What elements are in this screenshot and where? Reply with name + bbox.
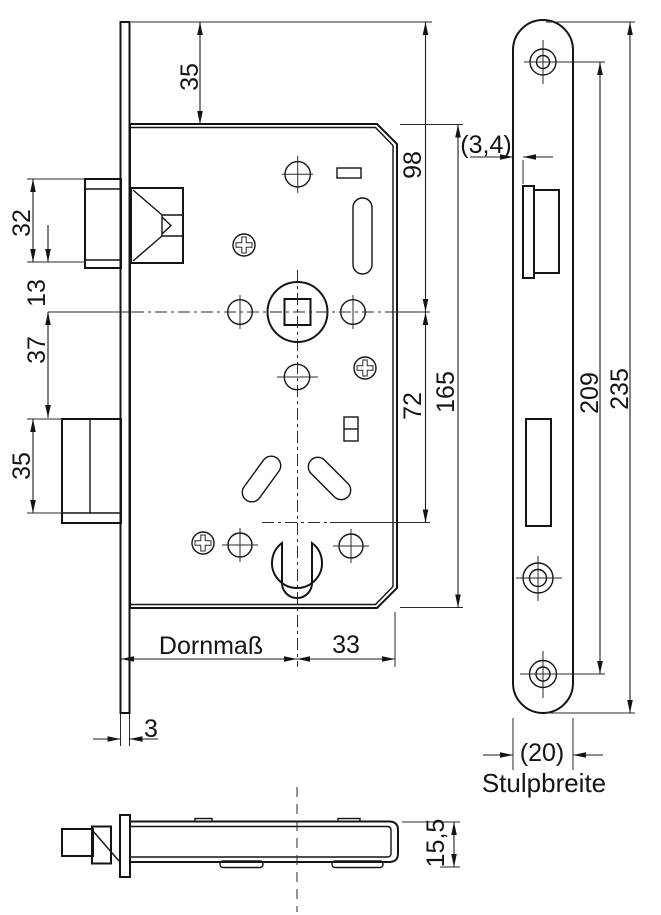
angled-slot bbox=[239, 452, 285, 505]
dim-text-35-top: 35 bbox=[176, 63, 204, 91]
case-top-view-outer bbox=[130, 822, 398, 863]
arrowhead bbox=[500, 752, 513, 758]
arrowhead bbox=[627, 22, 633, 35]
faceplate-top-view bbox=[120, 815, 130, 877]
arrowhead bbox=[455, 595, 461, 608]
dim-text-dornmass: Dornmaß bbox=[159, 632, 263, 660]
phillips-screw bbox=[233, 234, 255, 256]
faceplate-stulp bbox=[513, 20, 573, 713]
arrowhead bbox=[45, 312, 51, 325]
dim-text-15-5: 15,5 bbox=[422, 819, 450, 868]
dim-text-235: 235 bbox=[606, 368, 634, 410]
arrowhead bbox=[197, 22, 203, 35]
dim-text-3-4: (3,4) bbox=[460, 131, 511, 159]
arrowhead bbox=[45, 405, 51, 418]
latch-side-body bbox=[534, 190, 559, 273]
dim-text-20: (20) bbox=[520, 739, 564, 767]
arrowhead bbox=[382, 656, 395, 662]
bottom-view bbox=[62, 787, 398, 912]
arrowhead bbox=[423, 312, 429, 325]
arrowhead bbox=[451, 854, 457, 867]
technical-drawing-sheet: 35 98 32 13 37 35 72 165 209 235 15,5 (3… bbox=[0, 0, 661, 915]
latch-tip-top-view bbox=[62, 829, 93, 856]
arrowhead bbox=[451, 822, 457, 835]
arrowhead bbox=[423, 299, 429, 312]
phillips-cross-icon bbox=[357, 360, 373, 376]
vertical-slot bbox=[353, 198, 372, 274]
arrowhead bbox=[423, 22, 429, 35]
faceplate-edge bbox=[121, 22, 130, 713]
phillips-cross-icon bbox=[236, 237, 252, 253]
arrowhead bbox=[297, 656, 310, 662]
dimensions: 35 98 32 13 37 35 72 165 209 235 15,5 (3… bbox=[8, 22, 635, 867]
label-stulpbreite: Stulpbreite bbox=[482, 768, 606, 798]
latch-bevel-lines bbox=[133, 190, 183, 261]
lock-drawing-svg: 35 98 32 13 37 35 72 165 209 235 15,5 (3… bbox=[0, 0, 661, 915]
latch-head-front bbox=[131, 188, 183, 263]
case-tab bbox=[338, 819, 360, 822]
dim-text-35-bolt: 35 bbox=[8, 452, 36, 480]
arrowhead bbox=[130, 736, 143, 742]
dim-text-165: 165 bbox=[432, 371, 460, 413]
dim-text-37: 37 bbox=[23, 336, 51, 364]
arrowhead bbox=[597, 661, 603, 674]
phillips-screw bbox=[354, 357, 376, 379]
dim-text-72: 72 bbox=[399, 392, 427, 420]
dim-text-3: 3 bbox=[144, 715, 158, 743]
dim-text-209: 209 bbox=[576, 372, 604, 414]
case-top-view-inner bbox=[130, 827, 391, 858]
dim-text-32: 32 bbox=[8, 209, 36, 237]
deadbolt-slot bbox=[526, 419, 551, 526]
dim-text-98: 98 bbox=[399, 151, 427, 179]
arrowhead bbox=[30, 419, 36, 432]
arrowhead bbox=[284, 656, 297, 662]
arrowhead bbox=[30, 179, 36, 192]
arrowhead bbox=[30, 500, 36, 513]
arrowhead bbox=[523, 154, 536, 160]
phillips-screw bbox=[192, 532, 214, 554]
arrowhead bbox=[121, 656, 134, 662]
arrowhead bbox=[197, 111, 203, 124]
rect-punch bbox=[337, 168, 361, 178]
latch-bolt-front bbox=[85, 179, 121, 268]
dim-text-13: 13 bbox=[23, 279, 51, 307]
latch-bevel-top-view bbox=[93, 831, 119, 861]
arrowhead bbox=[573, 752, 586, 758]
deadbolt-front bbox=[62, 419, 121, 523]
arrowhead bbox=[108, 736, 121, 742]
latch-head-top-view bbox=[92, 827, 111, 864]
arrowhead bbox=[30, 249, 36, 262]
angled-slot bbox=[304, 453, 354, 503]
arrowhead bbox=[423, 510, 429, 523]
latch-side-strip bbox=[523, 186, 534, 278]
arrowhead bbox=[45, 249, 51, 262]
arrowhead bbox=[597, 62, 603, 75]
phillips-cross-icon bbox=[195, 535, 211, 551]
dim-text-33: 33 bbox=[332, 631, 360, 659]
arrowhead bbox=[627, 700, 633, 713]
case-tab bbox=[195, 819, 212, 822]
faceplate-side-view bbox=[513, 20, 605, 713]
front-view bbox=[48, 22, 430, 713]
